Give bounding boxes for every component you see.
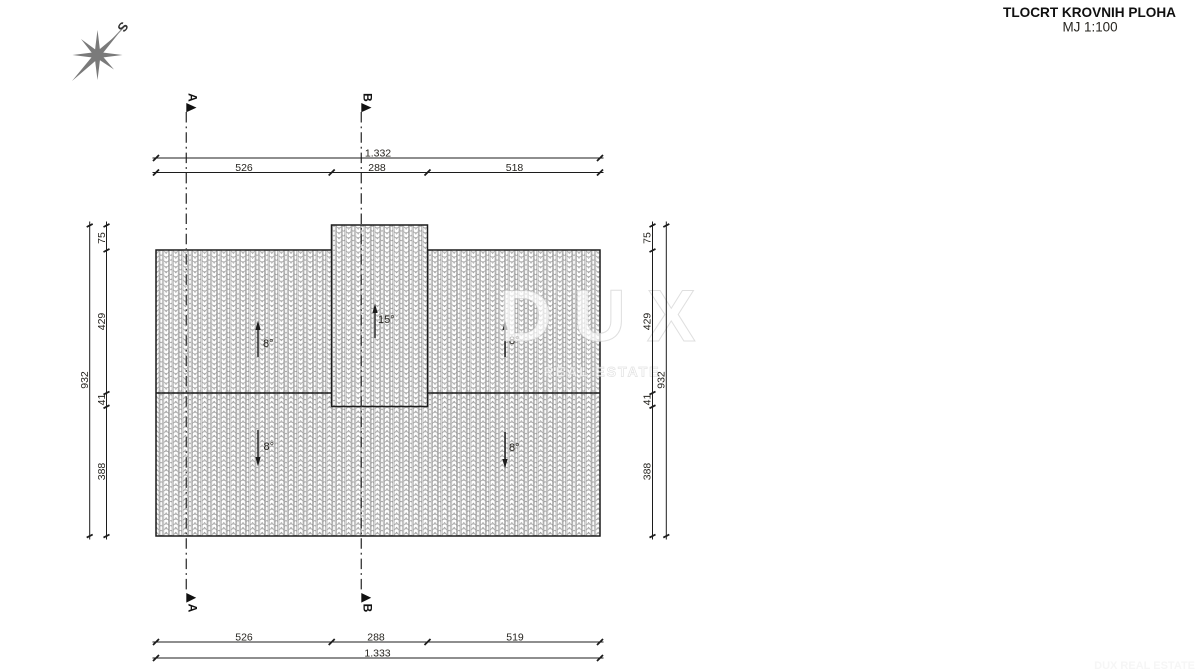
svg-text:15°: 15° bbox=[378, 314, 395, 326]
svg-text:526: 526 bbox=[235, 632, 253, 644]
svg-text:526: 526 bbox=[235, 162, 253, 174]
svg-text:518: 518 bbox=[506, 162, 524, 174]
svg-text:1.333: 1.333 bbox=[364, 648, 390, 660]
svg-text:8°: 8° bbox=[509, 442, 520, 454]
svg-text:75: 75 bbox=[96, 232, 108, 244]
svg-text:1.332: 1.332 bbox=[365, 148, 391, 160]
svg-text:A: A bbox=[186, 93, 200, 102]
svg-text:8°: 8° bbox=[263, 338, 274, 350]
svg-text:B: B bbox=[361, 93, 375, 102]
svg-text:A: A bbox=[186, 604, 200, 613]
svg-text:TLOCRT KROVNIH PLOHA: TLOCRT KROVNIH PLOHA bbox=[1003, 5, 1176, 20]
svg-text:388: 388 bbox=[96, 463, 108, 481]
svg-text:8°: 8° bbox=[264, 441, 275, 453]
svg-text:REAL ESTATE: REAL ESTATE bbox=[543, 365, 660, 381]
svg-text:388: 388 bbox=[641, 463, 653, 481]
svg-text:DUX REAL ESTATE: DUX REAL ESTATE bbox=[1094, 660, 1195, 670]
svg-text:288: 288 bbox=[368, 162, 386, 174]
svg-text:B: B bbox=[361, 604, 375, 613]
svg-text:MJ 1:100: MJ 1:100 bbox=[1062, 20, 1117, 35]
svg-text:932: 932 bbox=[656, 371, 668, 389]
svg-text:519: 519 bbox=[506, 632, 524, 644]
svg-text:932: 932 bbox=[79, 371, 91, 389]
svg-text:41: 41 bbox=[96, 394, 108, 406]
svg-text:DUX: DUX bbox=[499, 276, 716, 357]
svg-text:75: 75 bbox=[641, 232, 653, 244]
svg-text:41: 41 bbox=[641, 394, 653, 406]
svg-text:429: 429 bbox=[641, 313, 653, 331]
svg-text:288: 288 bbox=[367, 632, 385, 644]
svg-text:429: 429 bbox=[96, 313, 108, 331]
